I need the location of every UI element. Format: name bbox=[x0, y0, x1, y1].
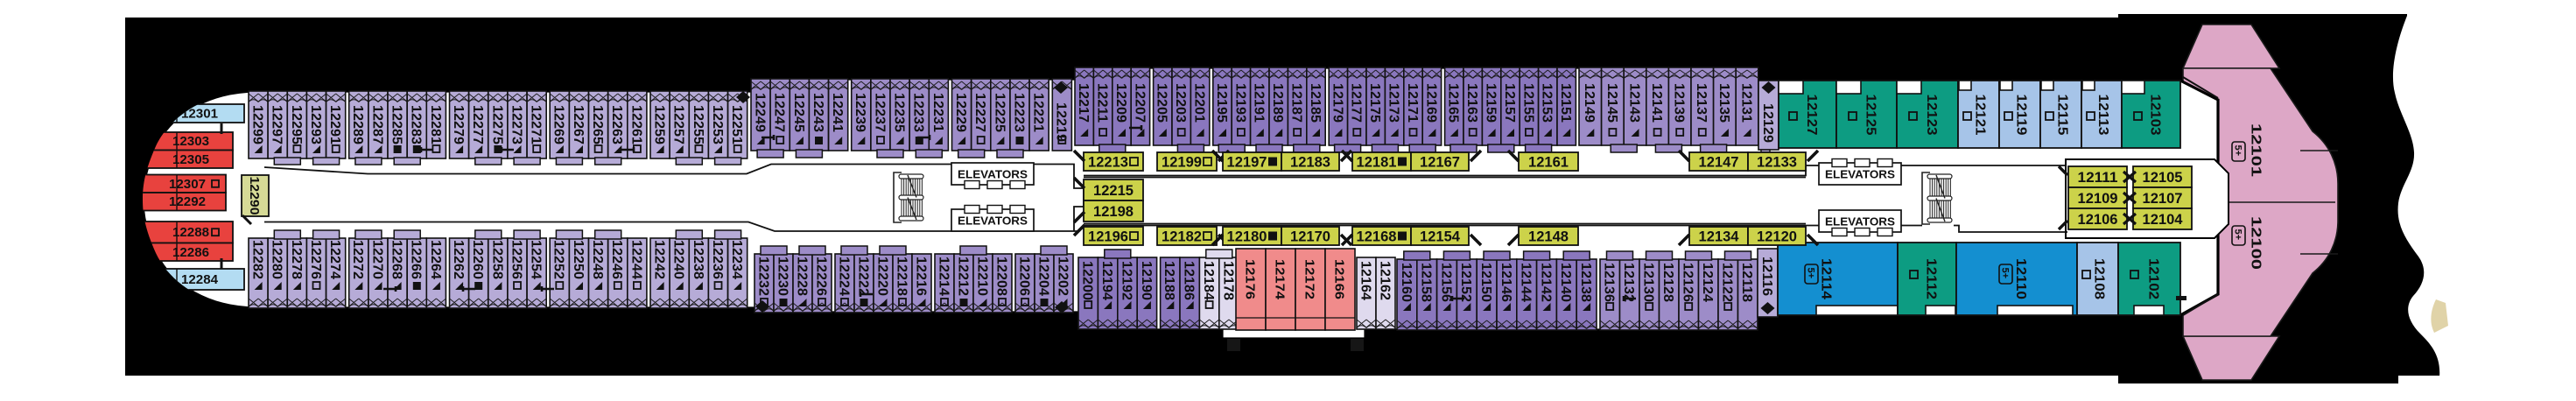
svg-text:12129: 12129 bbox=[1760, 103, 1775, 143]
svg-text:12123: 12123 bbox=[1924, 95, 1939, 136]
svg-text:ELEVATORS: ELEVATORS bbox=[1825, 168, 1895, 181]
svg-text:12103: 12103 bbox=[2148, 95, 2163, 136]
svg-text:12178: 12178 bbox=[1220, 261, 1235, 300]
svg-text:12170: 12170 bbox=[1290, 229, 1330, 245]
svg-text:12205: 12205 bbox=[1155, 83, 1169, 123]
svg-text:12158: 12158 bbox=[1419, 263, 1434, 302]
svg-text:5+: 5+ bbox=[2232, 229, 2243, 241]
svg-text:12168: 12168 bbox=[1357, 229, 1397, 245]
svg-text:12119: 12119 bbox=[2014, 95, 2029, 136]
svg-text:12148: 12148 bbox=[1528, 229, 1569, 245]
svg-text:12160: 12160 bbox=[1399, 263, 1414, 302]
svg-text:12207: 12207 bbox=[1132, 83, 1147, 123]
svg-text:12154: 12154 bbox=[1420, 229, 1461, 245]
svg-text:12210: 12210 bbox=[974, 257, 989, 296]
svg-text:12118: 12118 bbox=[1739, 263, 1754, 302]
svg-text:12162: 12162 bbox=[1377, 261, 1392, 300]
svg-text:12225: 12225 bbox=[992, 93, 1007, 132]
svg-text:12229: 12229 bbox=[953, 93, 968, 132]
svg-text:12212: 12212 bbox=[955, 257, 970, 296]
svg-text:12187: 12187 bbox=[1289, 83, 1304, 123]
svg-text:12200: 12200 bbox=[1080, 261, 1095, 300]
svg-text:12142: 12142 bbox=[1538, 263, 1553, 302]
svg-text:12163: 12163 bbox=[1464, 83, 1479, 123]
svg-text:12226: 12226 bbox=[813, 257, 828, 296]
svg-text:12270: 12270 bbox=[369, 240, 384, 279]
svg-text:12104: 12104 bbox=[2143, 212, 2184, 228]
svg-text:12191: 12191 bbox=[1252, 83, 1267, 123]
svg-text:12235: 12235 bbox=[892, 93, 907, 132]
svg-text:12131: 12131 bbox=[1738, 83, 1753, 123]
svg-text:12272: 12272 bbox=[350, 240, 365, 279]
svg-text:12127: 12127 bbox=[1804, 95, 1819, 136]
svg-text:12234: 12234 bbox=[729, 240, 744, 279]
svg-text:12248: 12248 bbox=[590, 240, 605, 279]
svg-text:12193: 12193 bbox=[1232, 83, 1247, 123]
svg-text:12121: 12121 bbox=[1973, 95, 1988, 136]
svg-text:12141: 12141 bbox=[1649, 83, 1664, 123]
svg-text:12257: 12257 bbox=[671, 105, 686, 144]
svg-text:12183: 12183 bbox=[1290, 155, 1330, 171]
svg-text:12189: 12189 bbox=[1270, 83, 1285, 123]
svg-text:12283: 12283 bbox=[409, 105, 424, 144]
svg-text:12292: 12292 bbox=[169, 195, 206, 209]
svg-text:12214: 12214 bbox=[936, 257, 951, 296]
svg-text:12110: 12110 bbox=[2013, 258, 2028, 299]
svg-text:12179: 12179 bbox=[1330, 83, 1344, 123]
svg-text:12128: 12128 bbox=[1660, 263, 1675, 302]
svg-text:12228: 12228 bbox=[794, 257, 809, 296]
svg-text:12246: 12246 bbox=[609, 240, 624, 279]
svg-text:12147: 12147 bbox=[1699, 155, 1739, 171]
svg-text:12152: 12152 bbox=[1458, 263, 1473, 302]
svg-text:12159: 12159 bbox=[1484, 83, 1499, 123]
svg-text:12285: 12285 bbox=[390, 105, 404, 144]
svg-text:12202: 12202 bbox=[1055, 257, 1070, 296]
svg-text:12215: 12215 bbox=[1093, 183, 1134, 199]
svg-text:12208: 12208 bbox=[993, 257, 1008, 296]
svg-text:12275: 12275 bbox=[489, 105, 504, 144]
svg-text:12122: 12122 bbox=[1720, 263, 1735, 302]
svg-text:12150: 12150 bbox=[1478, 263, 1493, 302]
svg-text:12124: 12124 bbox=[1700, 263, 1715, 302]
svg-text:12263: 12263 bbox=[609, 105, 624, 144]
svg-text:12232: 12232 bbox=[755, 257, 770, 296]
svg-text:5+: 5+ bbox=[1999, 268, 2010, 279]
svg-text:12261: 12261 bbox=[628, 105, 643, 144]
svg-text:12254: 12254 bbox=[529, 240, 544, 279]
svg-text:12259: 12259 bbox=[652, 105, 667, 144]
svg-text:12227: 12227 bbox=[972, 93, 987, 132]
svg-text:12213: 12213 bbox=[1088, 155, 1128, 171]
svg-text:5+: 5+ bbox=[2232, 145, 2243, 157]
svg-text:12290: 12290 bbox=[247, 177, 262, 215]
svg-text:12151: 12151 bbox=[1558, 83, 1573, 123]
svg-text:12307: 12307 bbox=[169, 178, 206, 192]
svg-text:12188: 12188 bbox=[1162, 261, 1176, 300]
svg-text:12239: 12239 bbox=[853, 93, 867, 132]
svg-text:12305: 12305 bbox=[172, 153, 209, 167]
svg-text:12209: 12209 bbox=[1113, 83, 1128, 123]
svg-text:12165: 12165 bbox=[1446, 83, 1461, 123]
svg-text:12196: 12196 bbox=[1088, 229, 1128, 245]
svg-text:12273: 12273 bbox=[509, 105, 523, 144]
svg-text:12201: 12201 bbox=[1192, 83, 1207, 123]
svg-text:12194: 12194 bbox=[1099, 261, 1114, 300]
svg-text:12253: 12253 bbox=[710, 105, 725, 144]
svg-text:12221: 12221 bbox=[1031, 93, 1046, 132]
svg-text:12245: 12245 bbox=[791, 93, 806, 132]
svg-text:12138: 12138 bbox=[1578, 263, 1593, 302]
svg-text:12199: 12199 bbox=[1162, 155, 1202, 171]
svg-text:12238: 12238 bbox=[691, 240, 705, 279]
svg-text:ELEVATORS: ELEVATORS bbox=[1825, 215, 1895, 229]
svg-text:12171: 12171 bbox=[1405, 83, 1420, 123]
svg-text:12236: 12236 bbox=[710, 240, 725, 279]
svg-text:12155: 12155 bbox=[1520, 83, 1535, 123]
svg-text:12126: 12126 bbox=[1681, 263, 1695, 302]
svg-text:12278: 12278 bbox=[289, 240, 304, 279]
svg-text:12284: 12284 bbox=[181, 273, 218, 287]
svg-text:12116: 12116 bbox=[1759, 257, 1774, 296]
svg-text:12251: 12251 bbox=[729, 105, 744, 144]
svg-text:12109: 12109 bbox=[2078, 191, 2118, 207]
svg-text:12255: 12255 bbox=[691, 105, 705, 144]
svg-text:12198: 12198 bbox=[1093, 204, 1134, 220]
svg-text:12180: 12180 bbox=[1227, 229, 1267, 245]
svg-text:12176: 12176 bbox=[1243, 259, 1258, 299]
svg-text:12175: 12175 bbox=[1367, 83, 1382, 123]
svg-text:12105: 12105 bbox=[2143, 170, 2183, 186]
svg-text:12293: 12293 bbox=[308, 105, 323, 144]
svg-text:12204: 12204 bbox=[1035, 257, 1050, 296]
svg-text:12195: 12195 bbox=[1214, 83, 1229, 123]
svg-text:12182: 12182 bbox=[1162, 229, 1202, 245]
svg-text:12233: 12233 bbox=[911, 93, 926, 132]
svg-text:12286: 12286 bbox=[172, 246, 209, 260]
svg-text:12177: 12177 bbox=[1349, 83, 1364, 123]
svg-text:12216: 12216 bbox=[913, 257, 928, 296]
svg-text:12274: 12274 bbox=[327, 240, 342, 279]
svg-text:12280: 12280 bbox=[270, 240, 284, 279]
svg-text:12157: 12157 bbox=[1502, 83, 1517, 123]
svg-text:12173: 12173 bbox=[1386, 83, 1401, 123]
svg-text:5+: 5+ bbox=[1805, 268, 1815, 279]
svg-text:12258: 12258 bbox=[489, 240, 504, 279]
svg-text:12190: 12190 bbox=[1139, 261, 1154, 300]
svg-text:12181: 12181 bbox=[1357, 155, 1397, 171]
svg-text:ELEVATORS: ELEVATORS bbox=[958, 168, 1028, 181]
svg-text:12295: 12295 bbox=[289, 105, 304, 144]
svg-text:12297: 12297 bbox=[270, 105, 284, 144]
svg-text:12130: 12130 bbox=[1641, 263, 1656, 302]
svg-text:12136: 12136 bbox=[1602, 263, 1617, 302]
svg-text:12161: 12161 bbox=[1528, 155, 1569, 171]
svg-text:12242: 12242 bbox=[652, 240, 667, 279]
svg-text:12267: 12267 bbox=[571, 105, 586, 144]
svg-text:12100: 12100 bbox=[2248, 216, 2263, 270]
svg-text:12265: 12265 bbox=[590, 105, 605, 144]
svg-text:12268: 12268 bbox=[390, 240, 404, 279]
svg-text:12249: 12249 bbox=[753, 93, 768, 132]
svg-text:12247: 12247 bbox=[772, 93, 787, 132]
svg-text:12164: 12164 bbox=[1358, 261, 1372, 300]
svg-text:12291: 12291 bbox=[327, 105, 342, 144]
svg-text:12237: 12237 bbox=[872, 93, 887, 132]
svg-text:12269: 12269 bbox=[551, 105, 566, 144]
svg-text:12145: 12145 bbox=[1604, 83, 1619, 123]
svg-text:12153: 12153 bbox=[1540, 83, 1555, 123]
svg-text:12112: 12112 bbox=[1924, 258, 1939, 299]
svg-text:12287: 12287 bbox=[369, 105, 384, 144]
svg-text:12299: 12299 bbox=[250, 105, 265, 144]
svg-text:12166: 12166 bbox=[1332, 259, 1347, 299]
svg-text:12211: 12211 bbox=[1095, 83, 1110, 123]
svg-text:12203: 12203 bbox=[1173, 83, 1188, 123]
svg-text:12192: 12192 bbox=[1119, 261, 1134, 300]
svg-text:12106: 12106 bbox=[2078, 212, 2118, 228]
svg-text:12231: 12231 bbox=[930, 93, 945, 132]
svg-text:12140: 12140 bbox=[1558, 263, 1573, 302]
svg-text:12125: 12125 bbox=[1864, 95, 1878, 136]
svg-text:12143: 12143 bbox=[1626, 83, 1641, 123]
svg-text:12243: 12243 bbox=[811, 93, 825, 132]
svg-text:12220: 12220 bbox=[874, 257, 889, 296]
svg-text:12256: 12256 bbox=[509, 240, 523, 279]
svg-text:12252: 12252 bbox=[551, 240, 566, 279]
svg-text:12266: 12266 bbox=[409, 240, 424, 279]
svg-text:12172: 12172 bbox=[1302, 259, 1317, 299]
svg-text:12102: 12102 bbox=[2146, 258, 2161, 299]
svg-text:12139: 12139 bbox=[1672, 83, 1687, 123]
svg-text:12222: 12222 bbox=[855, 257, 870, 296]
svg-text:12281: 12281 bbox=[428, 105, 443, 144]
svg-text:ELEVATORS: ELEVATORS bbox=[958, 215, 1028, 228]
svg-text:12282: 12282 bbox=[250, 240, 265, 279]
svg-text:12223: 12223 bbox=[1011, 93, 1026, 132]
svg-text:12134: 12134 bbox=[1699, 229, 1740, 245]
svg-text:12240: 12240 bbox=[671, 240, 686, 279]
svg-text:12114: 12114 bbox=[1819, 258, 1834, 299]
svg-text:12184: 12184 bbox=[1201, 261, 1216, 300]
svg-text:12260: 12260 bbox=[470, 240, 485, 279]
svg-text:12174: 12174 bbox=[1273, 259, 1288, 300]
svg-text:12108: 12108 bbox=[2092, 258, 2107, 299]
svg-text:12111: 12111 bbox=[2078, 170, 2118, 186]
svg-text:12120: 12120 bbox=[1757, 229, 1797, 245]
svg-text:12303: 12303 bbox=[172, 135, 209, 149]
svg-text:12185: 12185 bbox=[1308, 83, 1323, 123]
svg-text:12107: 12107 bbox=[2143, 191, 2183, 207]
svg-text:12135: 12135 bbox=[1716, 83, 1731, 123]
svg-text:12279: 12279 bbox=[451, 105, 466, 144]
svg-text:12144: 12144 bbox=[1519, 263, 1534, 302]
svg-text:12276: 12276 bbox=[308, 240, 323, 279]
svg-text:12113: 12113 bbox=[2095, 95, 2110, 136]
svg-text:12288: 12288 bbox=[172, 226, 209, 240]
svg-text:12230: 12230 bbox=[775, 257, 790, 296]
svg-text:12197: 12197 bbox=[1227, 155, 1267, 171]
svg-text:12262: 12262 bbox=[451, 240, 466, 279]
svg-text:12137: 12137 bbox=[1694, 83, 1709, 123]
svg-text:12149: 12149 bbox=[1582, 83, 1597, 123]
svg-text:12244: 12244 bbox=[628, 240, 643, 279]
svg-text:12224: 12224 bbox=[836, 257, 851, 296]
svg-text:12289: 12289 bbox=[350, 105, 365, 144]
svg-text:12206: 12206 bbox=[1016, 257, 1031, 296]
svg-text:12250: 12250 bbox=[571, 240, 586, 279]
svg-text:12101: 12101 bbox=[2248, 123, 2263, 178]
svg-text:12217: 12217 bbox=[1076, 83, 1091, 123]
svg-text:12115: 12115 bbox=[2055, 95, 2070, 136]
svg-text:12218: 12218 bbox=[894, 257, 909, 296]
svg-text:12146: 12146 bbox=[1499, 263, 1513, 302]
svg-text:12133: 12133 bbox=[1757, 155, 1797, 171]
svg-text:12169: 12169 bbox=[1423, 83, 1438, 123]
svg-text:12277: 12277 bbox=[470, 105, 485, 144]
svg-text:12271: 12271 bbox=[529, 105, 544, 144]
svg-text:12167: 12167 bbox=[1420, 155, 1460, 171]
svg-text:12186: 12186 bbox=[1182, 261, 1197, 300]
svg-text:12241: 12241 bbox=[830, 93, 845, 132]
svg-text:12264: 12264 bbox=[428, 240, 443, 279]
